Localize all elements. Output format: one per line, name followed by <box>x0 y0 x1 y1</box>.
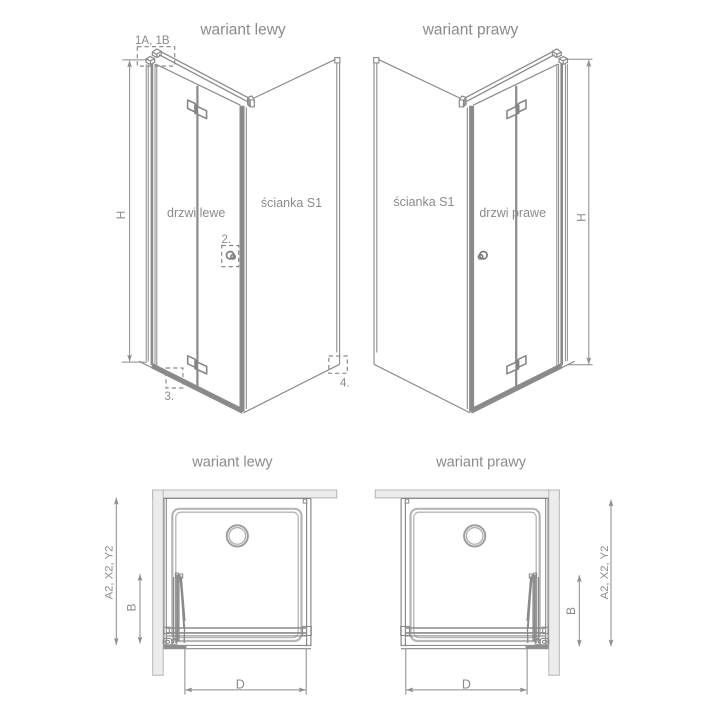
svg-text:wariant prawy: wariant prawy <box>422 22 519 39</box>
svg-text:B: B <box>124 603 138 611</box>
svg-text:wariant lewy: wariant lewy <box>191 455 273 471</box>
svg-text:H: H <box>575 213 589 222</box>
svg-text:3.: 3. <box>165 391 175 403</box>
svg-text:B: B <box>564 607 578 615</box>
svg-text:A2, X2, Y2: A2, X2, Y2 <box>104 546 116 600</box>
svg-text:A2, X2, Y2: A2, X2, Y2 <box>599 546 611 600</box>
svg-text:D: D <box>462 677 471 691</box>
svg-text:4.: 4. <box>340 378 350 390</box>
svg-text:ścianka S1: ścianka S1 <box>393 195 454 209</box>
svg-text:wariant prawy: wariant prawy <box>435 455 527 471</box>
svg-text:2.: 2. <box>222 234 232 246</box>
svg-text:H: H <box>114 211 128 220</box>
svg-text:1A, 1B: 1A, 1B <box>135 35 170 47</box>
svg-text:wariant lewy: wariant lewy <box>199 22 286 39</box>
svg-text:D: D <box>236 677 245 691</box>
svg-text:drzwi lewe: drzwi lewe <box>167 206 225 220</box>
svg-text:drzwi prawe: drzwi prawe <box>479 206 546 220</box>
svg-text:ścianka S1: ścianka S1 <box>261 196 322 210</box>
